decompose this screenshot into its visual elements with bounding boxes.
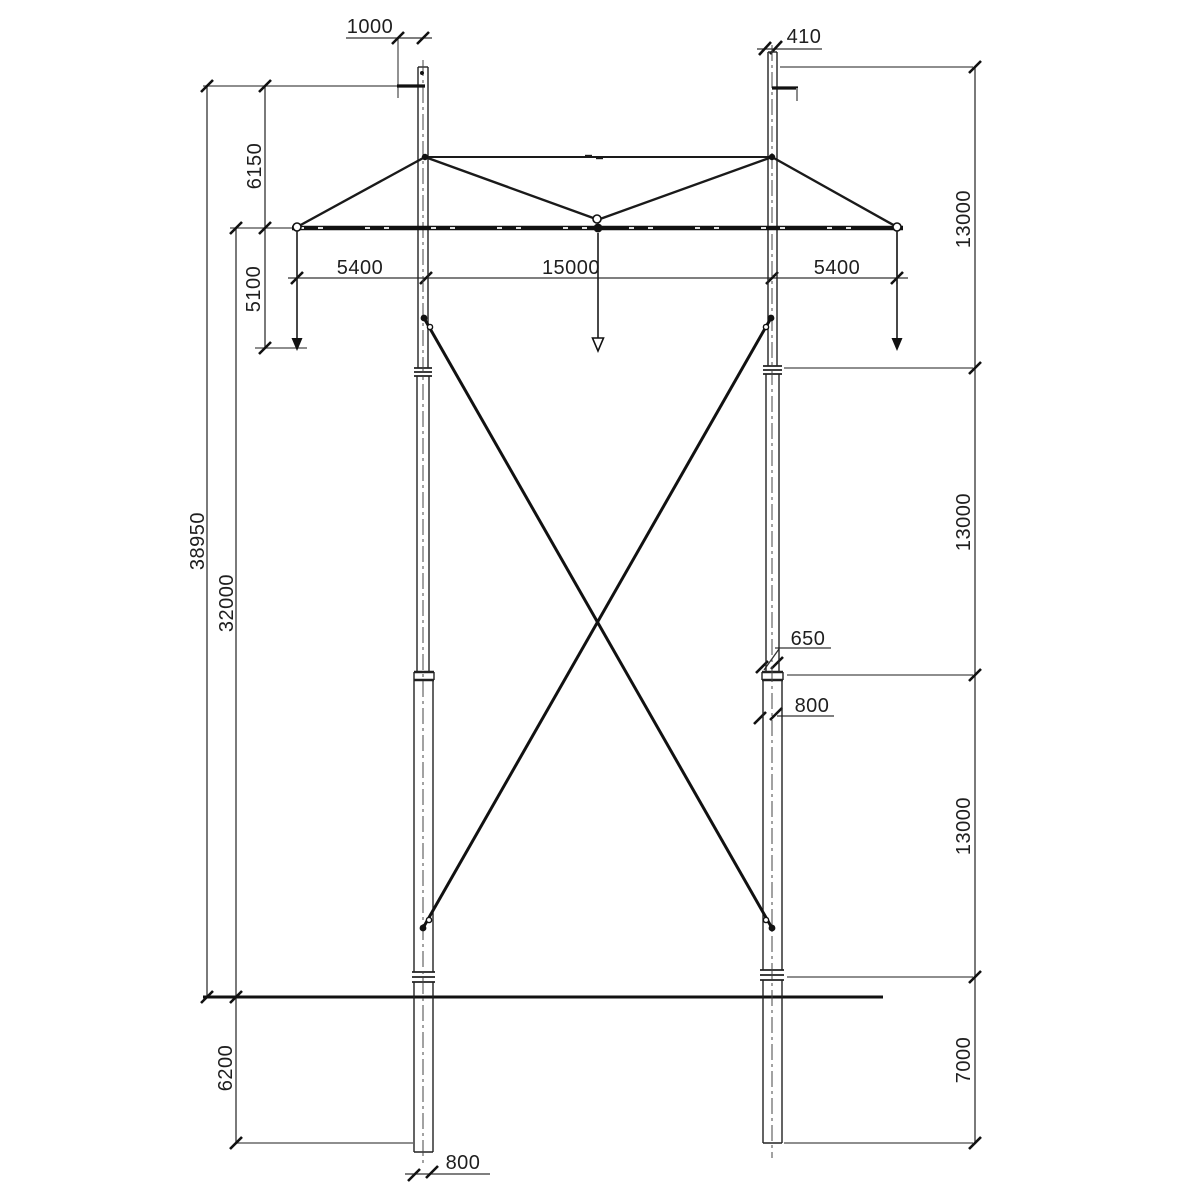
dim-joint-lower-diameter: 800 <box>795 696 830 716</box>
dim-embedment-depth: 6200 <box>216 1045 236 1092</box>
dim-peak-to-crossarm-height: 6150 <box>245 143 265 190</box>
right-pole <box>760 45 798 1158</box>
dim-crossarm-height-above-ground: 32000 <box>217 574 237 632</box>
drawing-linework <box>0 0 1200 1200</box>
dim-joint-upper-diameter: 650 <box>791 629 826 649</box>
dim-insulator-string-drop: 5100 <box>244 266 264 313</box>
dim-right-section-middle: 13000 <box>954 493 974 551</box>
dim-right-section-base: 7000 <box>954 1037 974 1084</box>
cross-brace <box>420 315 776 932</box>
right-conductor-arrowhead <box>892 338 903 351</box>
pole-elevation-drawing: 1000 410 6150 5100 5400 15000 5400 13000… <box>0 0 1200 1200</box>
dim-total-height-above-ground: 38950 <box>188 512 208 570</box>
dim-right-section-upper: 13000 <box>954 190 974 248</box>
dim-pole-base-diameter: 800 <box>446 1153 481 1173</box>
dimension-lines <box>207 38 975 1174</box>
left-conductor-arrowhead <box>292 338 303 351</box>
dim-ground-wire-peak-offset: 1000 <box>347 17 394 37</box>
dim-right-section-lower: 13000 <box>954 797 974 855</box>
dim-pole-spacing: 15000 <box>542 258 600 278</box>
dimension-ticks <box>201 32 981 1181</box>
center-conductor-arrowhead <box>593 338 604 351</box>
dim-right-crossarm-overhang: 5400 <box>814 258 861 278</box>
conductor-arrows <box>292 231 903 351</box>
dim-right-pole-top-width: 410 <box>787 27 822 47</box>
crossarm-truss <box>292 154 903 233</box>
dim-left-crossarm-overhang: 5400 <box>337 258 384 278</box>
